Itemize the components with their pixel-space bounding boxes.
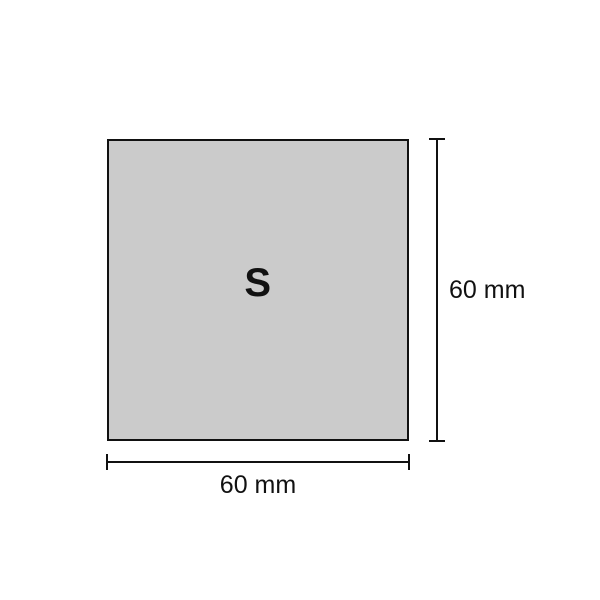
height-dimension-line xyxy=(436,139,438,441)
height-dimension-cap-top xyxy=(429,138,445,140)
width-dimension-cap-left xyxy=(106,454,108,470)
dimension-diagram: S 60 mm 60 mm xyxy=(0,0,600,600)
width-dimension-line xyxy=(107,461,409,463)
width-dimension-label: 60 mm xyxy=(107,471,409,500)
shape-square: S xyxy=(107,139,409,441)
height-dimension-cap-bottom xyxy=(429,440,445,442)
height-dimension-label: 60 mm xyxy=(449,139,525,441)
shape-label: S xyxy=(244,261,271,306)
width-dimension-cap-right xyxy=(408,454,410,470)
